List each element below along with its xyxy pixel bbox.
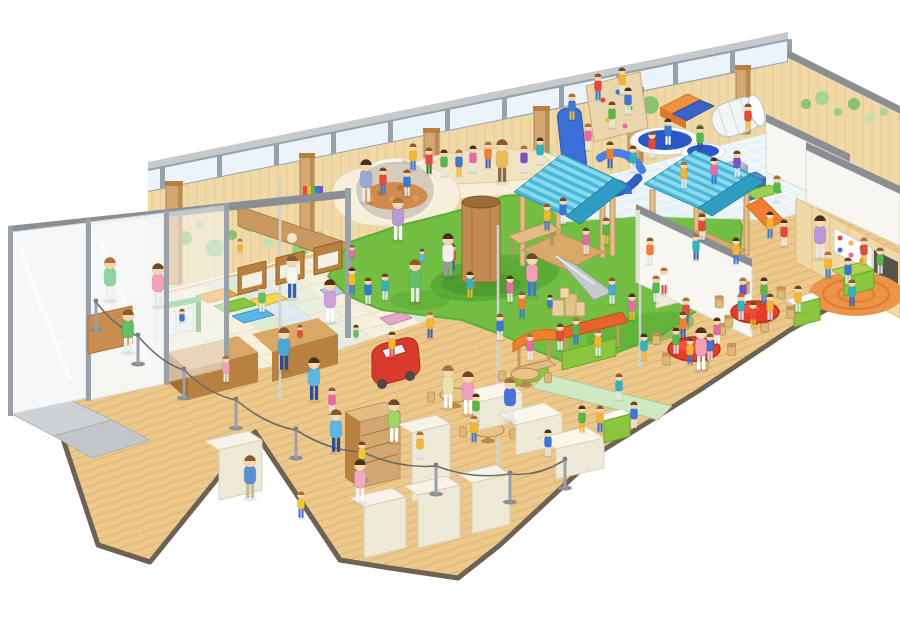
glass-pane xyxy=(168,205,226,382)
isometric-scene xyxy=(0,0,900,623)
playground-illustration: Isometric cutaway illustration of an ind… xyxy=(0,0,900,623)
